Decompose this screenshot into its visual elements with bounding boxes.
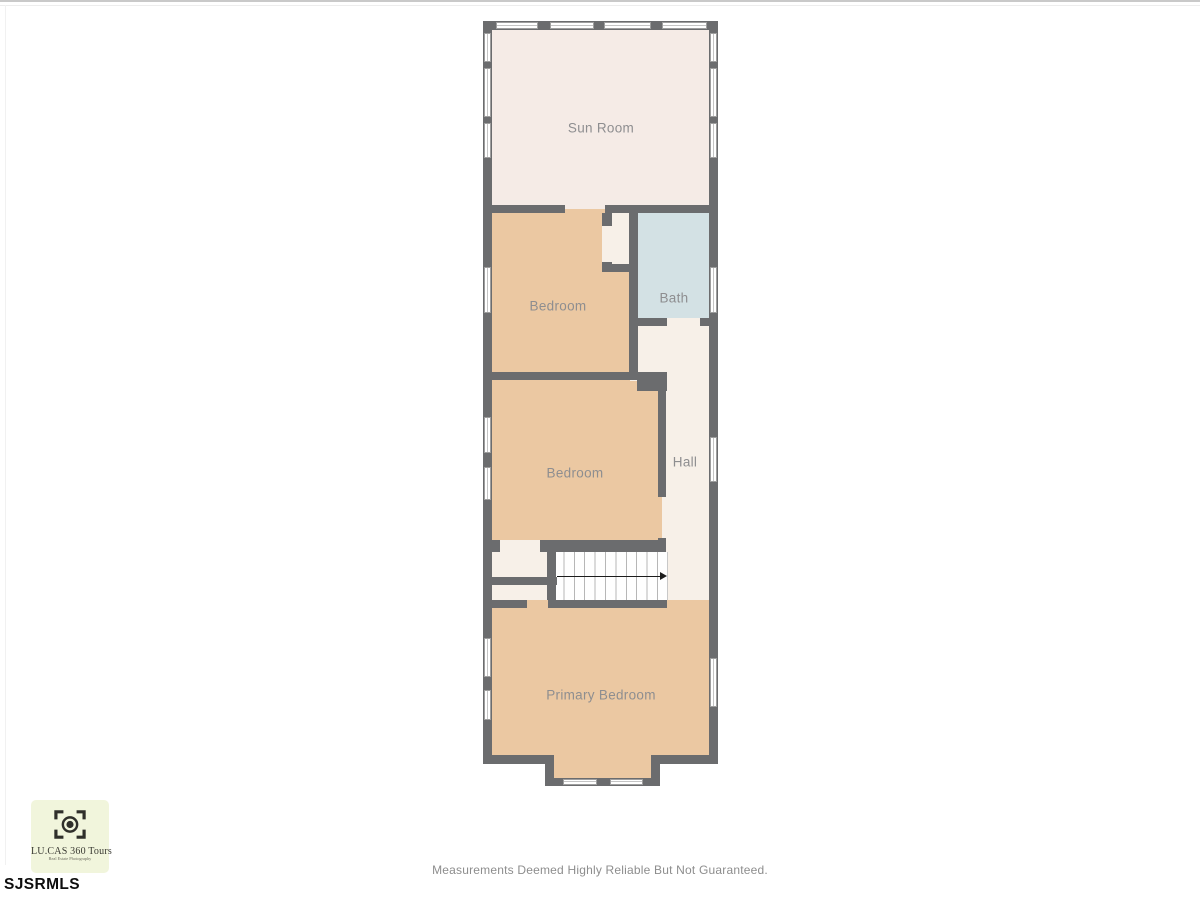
window	[710, 658, 717, 707]
wall-segment-sunroom-bottom-b	[605, 205, 718, 213]
room-fill-sunroom	[487, 25, 714, 213]
logo-subtitle: Real Estate Photography	[42, 857, 98, 861]
window	[484, 467, 491, 500]
stairs-direction-arrow	[557, 576, 661, 577]
page-left-hairline	[5, 5, 6, 865]
window	[484, 638, 491, 677]
room-label-hall: Hall	[673, 455, 697, 470]
wall-segment-stairs-left	[547, 552, 556, 600]
footer-disclaimer: Measurements Deemed Highly Reliable But …	[432, 863, 768, 877]
window	[710, 267, 717, 313]
window	[484, 417, 491, 453]
window	[710, 33, 717, 62]
window	[563, 779, 597, 785]
window	[484, 68, 491, 117]
window	[496, 22, 538, 29]
wall-segment-bedroom2-right-stub	[658, 538, 666, 552]
window	[710, 437, 717, 482]
window	[550, 22, 594, 29]
window	[484, 267, 491, 313]
wall-segment-bedroom2-bottom-b	[540, 540, 666, 552]
page-top-border	[0, 0, 1200, 2]
wall-segment-bath-left	[629, 209, 638, 380]
room-label-primary: Primary Bedroom	[546, 688, 656, 703]
room-fill-bedroom2	[487, 381, 662, 544]
wall-segment-bedroom1-bottom	[483, 372, 638, 380]
wall-segment-closet1-stub-bottom	[602, 262, 612, 272]
room-fill-primary	[487, 600, 714, 758]
wall-segment-bedroom2-bottom-a	[483, 540, 500, 552]
wall-segment-sunroom-bottom-a	[483, 205, 565, 213]
logo-title: LU.CAS 360 Tours	[31, 846, 109, 857]
wall-segment-bath-bottom-b	[700, 318, 709, 326]
window	[484, 690, 491, 720]
window	[662, 22, 707, 29]
room-fill-bath	[634, 209, 714, 324]
wall-segment-landing-bottom-a	[483, 600, 527, 608]
mls-watermark: SJSRMLS	[4, 876, 80, 894]
window	[710, 123, 717, 158]
window	[484, 123, 491, 158]
window	[604, 22, 651, 29]
page-top-hairline	[0, 5, 1200, 6]
camera-viewfinder-icon	[31, 809, 109, 845]
room-label-bath: Bath	[660, 291, 689, 306]
window	[710, 68, 717, 117]
floorplan-page: Sun Room Bedroom Bath Bedroom Hall Prima…	[0, 0, 1200, 900]
room-label-sunroom: Sun Room	[568, 121, 634, 136]
window	[484, 33, 491, 62]
wall-segment-bedroom2-right	[658, 381, 666, 497]
wall-segment-bottom-right	[656, 755, 718, 764]
wall-segment-closet1-stub-top	[602, 213, 612, 226]
photographer-logo: LU.CAS 360 Tours Real Estate Photography	[31, 800, 109, 873]
wall-segment-closet-divider	[483, 577, 557, 585]
wall-segment-bottom-left	[483, 755, 549, 764]
window	[610, 779, 643, 785]
room-label-bedroom2: Bedroom	[547, 466, 604, 481]
wall-segment-landing-bottom-b	[548, 600, 667, 608]
room-label-bedroom1: Bedroom	[530, 299, 587, 314]
